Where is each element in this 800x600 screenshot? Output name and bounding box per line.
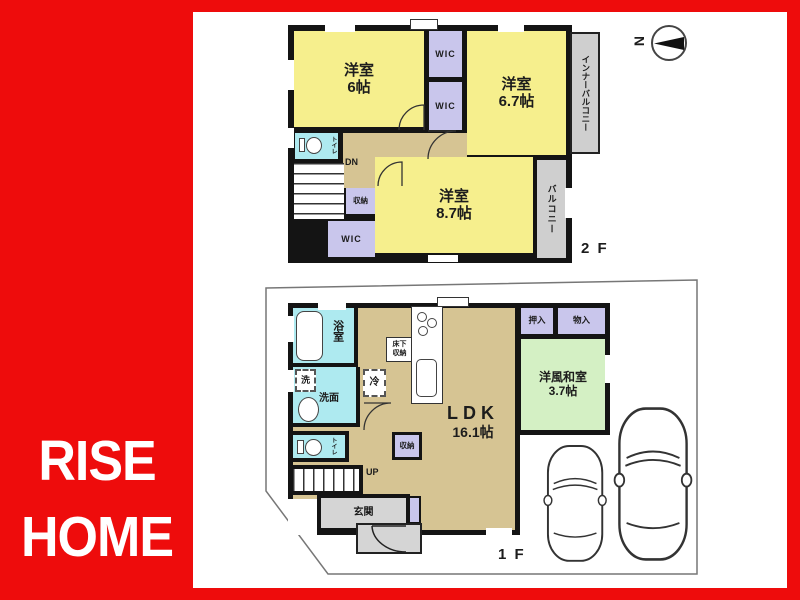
room-label: 冷 bbox=[370, 377, 380, 389]
room-label: 床下 bbox=[393, 341, 407, 349]
floor2-building: 洋室 6帖 WIC WIC 洋室 6.7帖 トイレ DN 収納 bbox=[288, 25, 572, 263]
compass-needle-icon bbox=[654, 37, 684, 50]
floor1-fridge: 冷 bbox=[363, 369, 386, 397]
vent-mark bbox=[410, 19, 438, 30]
room-label: 浴室 bbox=[331, 320, 344, 342]
washbasin-icon bbox=[298, 397, 319, 422]
floor1-washitsu: 洋風和室 3.7帖 bbox=[521, 339, 605, 430]
room-label: バルコニー bbox=[546, 184, 556, 234]
stairs-up-label: UP bbox=[366, 467, 377, 477]
floor1-ldk-label: LDK 16.1帖 bbox=[433, 403, 513, 440]
window-mark bbox=[325, 24, 355, 32]
brand-line2: HOME bbox=[8, 500, 186, 576]
toilet-icon bbox=[297, 440, 304, 454]
stairs-dn-label: DN bbox=[345, 157, 358, 167]
floor2-toilet: トイレ bbox=[295, 133, 338, 159]
page: RISE HOME 洋室 6帖 WIC WIC 洋室 6.7帖 トイレ bbox=[0, 0, 800, 600]
floor1-closet: 収納 bbox=[392, 432, 422, 460]
room-label: 洋室 bbox=[501, 76, 531, 93]
room-label: 収納 bbox=[393, 350, 407, 358]
window-mark bbox=[288, 60, 294, 90]
floor2-wic-a: WIC bbox=[429, 31, 462, 77]
stove-burner-icon bbox=[418, 326, 428, 336]
room-size: 16.1帖 bbox=[452, 424, 493, 440]
toilet-icon bbox=[305, 439, 322, 456]
room-size: 3.7帖 bbox=[549, 385, 578, 399]
floor1-washroom: 洗 洗面 bbox=[293, 367, 360, 427]
room-label: 洋室 bbox=[344, 62, 374, 79]
brand-logo: RISE HOME bbox=[8, 424, 186, 575]
floor1-oshiire: 押入 bbox=[521, 308, 553, 334]
floor2-closet: 収納 bbox=[346, 188, 375, 214]
floor1-monoire: 物入 bbox=[558, 308, 605, 334]
floor1-washitsu-block: 押入 物入 洋風和室 3.7帖 bbox=[516, 303, 610, 435]
stove-burner-icon bbox=[417, 312, 427, 322]
floor2-bedroom87: 洋室 8.7帖 bbox=[375, 157, 533, 253]
floor1-toilet: トイレ bbox=[293, 431, 349, 462]
floor1-bath: 浴室 bbox=[293, 308, 358, 367]
floor1-underfloor-storage: 床下 収納 bbox=[386, 337, 413, 362]
window-mark bbox=[486, 528, 512, 535]
room-label: 収納 bbox=[353, 197, 368, 206]
room-label: インナーバルコニー bbox=[580, 55, 590, 132]
floor1-label: 1 F bbox=[498, 546, 526, 563]
window-mark bbox=[498, 24, 524, 32]
room-size: 6帖 bbox=[347, 79, 370, 96]
room-label: 洋風和室 bbox=[539, 371, 587, 385]
room-label: 物入 bbox=[573, 316, 590, 326]
floor2-wic-c: WIC bbox=[328, 221, 375, 257]
room-size: 8.7帖 bbox=[436, 205, 472, 222]
entrance-porch bbox=[356, 523, 422, 554]
kitchen-sink-icon bbox=[416, 359, 437, 397]
compass-north-label: N bbox=[631, 36, 647, 46]
window-mark bbox=[605, 355, 610, 383]
window-mark bbox=[288, 370, 294, 392]
room-label: WIC bbox=[435, 49, 456, 59]
window-mark bbox=[288, 316, 294, 342]
room-label: トイレ bbox=[329, 136, 336, 154]
kitchen-counter bbox=[411, 306, 443, 404]
floor1-stairs bbox=[293, 465, 363, 495]
floor2-stairs bbox=[294, 163, 344, 219]
room-label: 収納 bbox=[400, 442, 415, 451]
floor2-label: 2 F bbox=[581, 240, 609, 257]
window-mark bbox=[318, 302, 346, 310]
floor2-balcony: バルコニー bbox=[537, 160, 566, 258]
floor1-laundry: 洗 bbox=[295, 369, 316, 392]
brand-line1: RISE bbox=[8, 424, 186, 500]
site-ground bbox=[288, 499, 317, 535]
room-label: 洋室 bbox=[439, 188, 469, 205]
room-size: 6.7帖 bbox=[499, 93, 535, 110]
floor2-inner-balcony: インナーバルコニー bbox=[570, 32, 600, 154]
room-label: 洗 bbox=[301, 375, 310, 385]
compass bbox=[651, 25, 687, 61]
window-mark bbox=[288, 128, 294, 148]
room-label: トイレ bbox=[329, 437, 336, 455]
vent-mark bbox=[437, 297, 469, 307]
room-label: WIC bbox=[341, 234, 362, 244]
floor2-wic-b: WIC bbox=[429, 82, 462, 130]
room-label: LDK bbox=[447, 403, 499, 424]
room-label: 押入 bbox=[528, 316, 545, 326]
floor2-bedroom67: 洋室 6.7帖 bbox=[467, 31, 566, 155]
front-door-arc bbox=[358, 525, 420, 552]
bathtub-icon bbox=[296, 311, 323, 361]
floor2-bedroom6: 洋室 6帖 bbox=[294, 31, 424, 127]
toilet-icon bbox=[306, 137, 322, 154]
toilet-icon bbox=[299, 138, 305, 152]
window-mark bbox=[565, 188, 572, 218]
room-label: 玄関 bbox=[354, 507, 374, 519]
room-label: WIC bbox=[435, 101, 456, 111]
window-mark bbox=[428, 255, 458, 262]
room-label: 洗面 bbox=[319, 393, 339, 405]
entrance-storage bbox=[408, 496, 421, 524]
stove-burner-icon bbox=[427, 318, 437, 328]
